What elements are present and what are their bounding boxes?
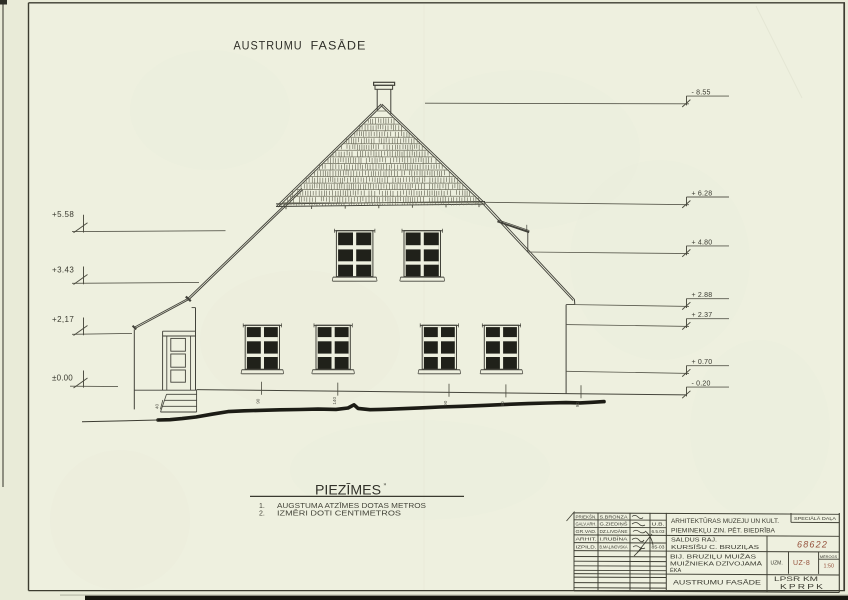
svg-text:85-03: 85-03 xyxy=(652,545,666,550)
svg-text:+ 2.37: + 2.37 xyxy=(692,312,713,319)
svg-text:UZ-8: UZ-8 xyxy=(793,560,810,567)
svg-text:ARHITEKTŪRAS MUZEJU UN KULT.: ARHITEKTŪRAS MUZEJU UN KULT. xyxy=(671,518,779,525)
svg-text:+ 2.88: + 2.88 xyxy=(692,292,713,299)
svg-text:2.: 2. xyxy=(259,511,265,518)
svg-text:PIEMINEKĻU ZIN. PĒT. BIEDRĪBA: PIEMINEKĻU ZIN. PĒT. BIEDRĪBA xyxy=(671,527,776,534)
svg-text:KURSĪŠU C. BRUZIĻAS: KURSĪŠU C. BRUZIĻAS xyxy=(671,544,760,551)
svg-text:6.5.03: 6.5.03 xyxy=(652,529,666,534)
svg-text:MĒROGS: MĒROGS xyxy=(820,554,838,559)
svg-text:UZM.: UZM. xyxy=(771,561,783,567)
svg-text:B.MAĻINOVSKA: B.MAĻINOVSKA xyxy=(600,545,629,550)
svg-text:G.ZIEDIŅŠ: G.ZIEDIŅŠ xyxy=(600,520,628,526)
svg-text:68622: 68622 xyxy=(797,540,828,550)
svg-text:IZMĒRI DOTI CENTIMETROS: IZMĒRI DOTI CENTIMETROS xyxy=(277,510,401,518)
svg-text:+ 4.80: + 4.80 xyxy=(692,239,713,246)
svg-text:AUGSTUMA ATZĪMES DOTAS METROS: AUGSTUMA ATZĪMES DOTAS METROS xyxy=(277,502,426,510)
svg-text:PRIEKŠN.: PRIEKŠN. xyxy=(576,513,597,519)
svg-text:AUSTRUMU: AUSTRUMU xyxy=(234,39,303,53)
svg-text:GALV.ARH.: GALV.ARH. xyxy=(576,521,597,526)
svg-text:+2,17: +2,17 xyxy=(52,315,74,324)
svg-text:SPECIĀLĀ DAĻA: SPECIĀLĀ DAĻA xyxy=(794,516,836,521)
svg-text:I.RUBĪNA: I.RUBĪNA xyxy=(600,536,629,542)
svg-text:U.B.: U.B. xyxy=(652,521,665,526)
svg-text:1.: 1. xyxy=(259,503,265,510)
svg-text:±0.00: ±0.00 xyxy=(52,374,73,383)
svg-text:90: 90 xyxy=(575,402,580,408)
svg-text:- 0.20: - 0.20 xyxy=(692,381,711,388)
svg-text:PIEZĪMES: PIEZĪMES xyxy=(315,483,381,498)
svg-text:140: 140 xyxy=(332,397,337,405)
svg-text:+5.58: +5.58 xyxy=(52,210,74,219)
svg-text:90: 90 xyxy=(443,400,448,406)
svg-text:S.BRONZA: S.BRONZA xyxy=(600,514,629,519)
svg-text:DZ.LIVDĀNE: DZ.LIVDĀNE xyxy=(600,528,628,534)
svg-text:BIJ. BRUZIĻU MUIŽAS: BIJ. BRUZIĻU MUIŽAS xyxy=(670,552,756,560)
svg-text:IZPILD.: IZPILD. xyxy=(576,545,597,550)
svg-text:+ 6.28: + 6.28 xyxy=(692,190,713,197)
svg-text:SALDUS RAJ.: SALDUS RAJ. xyxy=(671,538,717,544)
svg-text:GR.VAD.: GR.VAD. xyxy=(576,529,597,534)
svg-text:KPRPK: KPRPK xyxy=(780,584,825,591)
svg-text:FASĀDE: FASĀDE xyxy=(311,39,367,53)
svg-text:1:50: 1:50 xyxy=(824,564,835,570)
svg-text:ARHIT.: ARHIT. xyxy=(576,537,597,542)
svg-text:MUIŽNIEKA DZĪVOJAMĀ: MUIŽNIEKA DZĪVOJAMĀ xyxy=(670,560,762,568)
svg-text:AUSTRUMU FASĀDE: AUSTRUMU FASĀDE xyxy=(673,579,761,587)
svg-text:ĒKA: ĒKA xyxy=(670,567,681,574)
svg-text:+3.43: +3.43 xyxy=(52,266,74,275)
svg-text:40: 40 xyxy=(155,403,160,409)
svg-text:90: 90 xyxy=(256,398,261,404)
svg-text:- 8.55: - 8.55 xyxy=(692,90,711,97)
svg-text:40: 40 xyxy=(500,401,505,407)
svg-text:”: ” xyxy=(384,483,387,492)
svg-text:LPSR KM: LPSR KM xyxy=(774,576,818,583)
svg-text:+ 0.70: + 0.70 xyxy=(692,359,713,366)
